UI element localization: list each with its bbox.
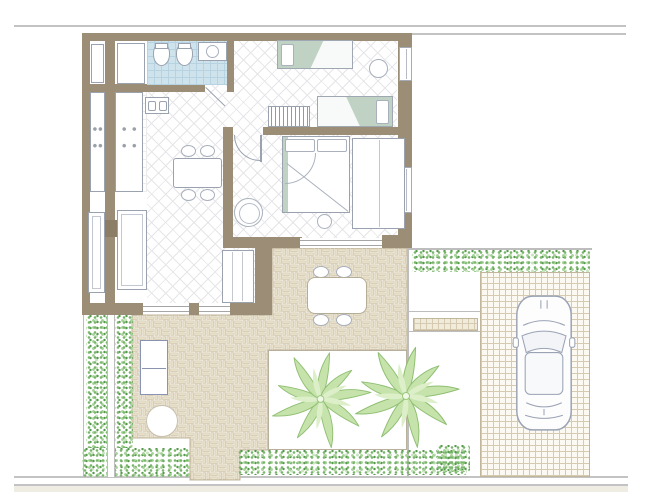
dining-chair	[181, 189, 196, 201]
radiator	[268, 106, 310, 127]
round-side-table	[369, 59, 388, 78]
wall-living-master	[223, 127, 233, 248]
wall-master-bottom-left	[223, 237, 302, 248]
wall-top	[82, 33, 412, 41]
washbasin	[206, 45, 219, 58]
outdoor-chair	[336, 314, 352, 326]
closet-left	[91, 44, 104, 83]
wall-living-bottom-left	[82, 303, 143, 315]
outdoor-table	[307, 277, 367, 314]
dining-chair	[200, 145, 215, 157]
dining-chair	[200, 189, 215, 201]
sliding-door-master	[300, 238, 382, 248]
cooktop-right	[117, 122, 141, 154]
single-bed-2	[317, 96, 393, 127]
cooktop-left	[91, 122, 104, 154]
sliding-door-living	[143, 304, 230, 314]
outdoor-chair	[313, 314, 329, 326]
master-door-leaf	[260, 135, 262, 162]
window-right-upper	[399, 47, 412, 81]
palm-tree-2	[345, 337, 467, 455]
wall-party	[105, 41, 115, 315]
wardrobe	[352, 138, 405, 229]
car	[512, 294, 576, 432]
pillow	[285, 139, 315, 152]
wall-master-bottom-right	[382, 235, 412, 248]
door-pillar	[189, 303, 199, 315]
single-bed-1	[277, 40, 353, 69]
dining-table	[173, 158, 222, 188]
shelf-unit	[222, 250, 254, 303]
round-armchair	[234, 198, 263, 227]
wall-bathroom-bottom	[147, 85, 205, 92]
closet-right	[117, 43, 145, 84]
round-patio-table	[146, 405, 178, 437]
storage-cabinet	[140, 340, 168, 395]
double-sink-island	[145, 97, 169, 114]
toilet-tank	[155, 43, 168, 49]
wall-master-top	[263, 127, 412, 135]
sideboard-left	[88, 212, 105, 293]
wall-bathroom-right	[227, 41, 234, 92]
pillow	[317, 139, 347, 152]
floor-plan-canvas	[0, 0, 648, 492]
dining-chair	[181, 145, 196, 157]
bidet-tap	[178, 43, 191, 49]
pouf	[317, 214, 332, 229]
wall-living-bottom-right	[230, 303, 272, 315]
sideboard-right	[117, 210, 147, 290]
wall-closet-bottom	[82, 84, 147, 92]
